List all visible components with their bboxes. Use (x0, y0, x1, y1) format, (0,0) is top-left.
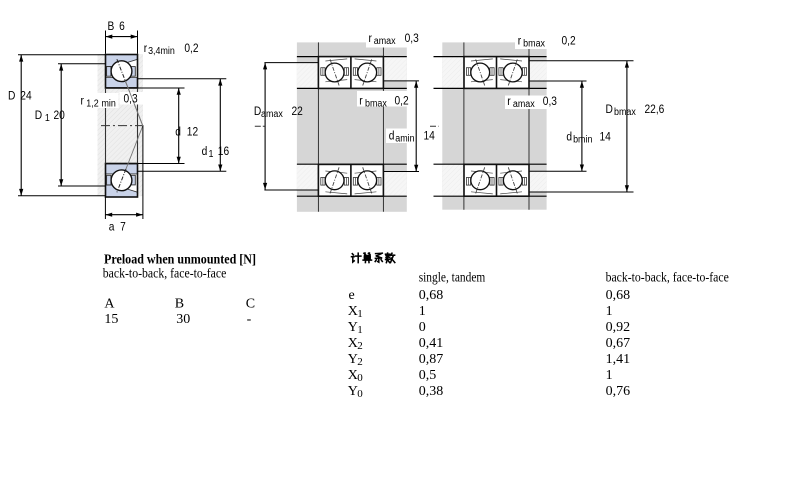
svg-text:damin14: damin14 (389, 130, 435, 145)
svg-text:0,41: 0,41 (419, 336, 444, 351)
svg-text:B: B (175, 297, 184, 312)
svg-text:0,76: 0,76 (606, 384, 631, 399)
svg-text:back-to-back, face-to-face: back-to-back, face-to-face (103, 266, 227, 281)
svg-text:0,68: 0,68 (606, 288, 631, 303)
svg-text:0,5: 0,5 (419, 368, 437, 383)
svg-text:C: C (246, 297, 255, 312)
svg-text:0,67: 0,67 (606, 336, 631, 351)
svg-text:back-to-back, face-to-face: back-to-back, face-to-face (606, 270, 729, 285)
svg-text:0,38: 0,38 (419, 384, 444, 399)
svg-text:A: A (104, 297, 115, 312)
svg-text:r3,4min0,2: r3,4min0,2 (144, 42, 199, 57)
svg-text:Preload when unmounted [N]: Preload when unmounted [N] (104, 252, 256, 267)
svg-text:0,3: 0,3 (123, 93, 137, 106)
svg-text:0: 0 (419, 320, 426, 335)
svg-text:0,87: 0,87 (419, 352, 444, 367)
svg-text:Dbmax22,6: Dbmax22,6 (605, 103, 664, 118)
svg-text:e: e (349, 288, 355, 303)
svg-text:single, tandem: single, tandem (419, 271, 486, 286)
svg-text:d12: d12 (175, 126, 198, 139)
svg-text:Damax22: Damax22 (254, 105, 303, 120)
svg-text:rbmax0,2: rbmax0,2 (359, 95, 408, 110)
svg-text:0,68: 0,68 (419, 288, 444, 303)
svg-text:1: 1 (606, 368, 613, 383)
svg-text:1: 1 (419, 304, 426, 319)
svg-text:D120: D120 (35, 109, 65, 124)
svg-text:r1,2min: r1,2min (81, 95, 116, 110)
svg-text:15: 15 (104, 312, 118, 327)
svg-text:-: - (247, 312, 252, 327)
svg-text:dbmin14: dbmin14 (566, 131, 610, 146)
svg-text:0,92: 0,92 (606, 320, 631, 335)
svg-text:ramax0,3: ramax0,3 (507, 95, 557, 110)
svg-text:D24: D24 (8, 90, 32, 103)
svg-text:30: 30 (176, 312, 190, 327)
svg-text:1: 1 (606, 304, 613, 319)
svg-text:ramax0,3: ramax0,3 (369, 32, 419, 47)
svg-text:1,41: 1,41 (606, 352, 631, 367)
